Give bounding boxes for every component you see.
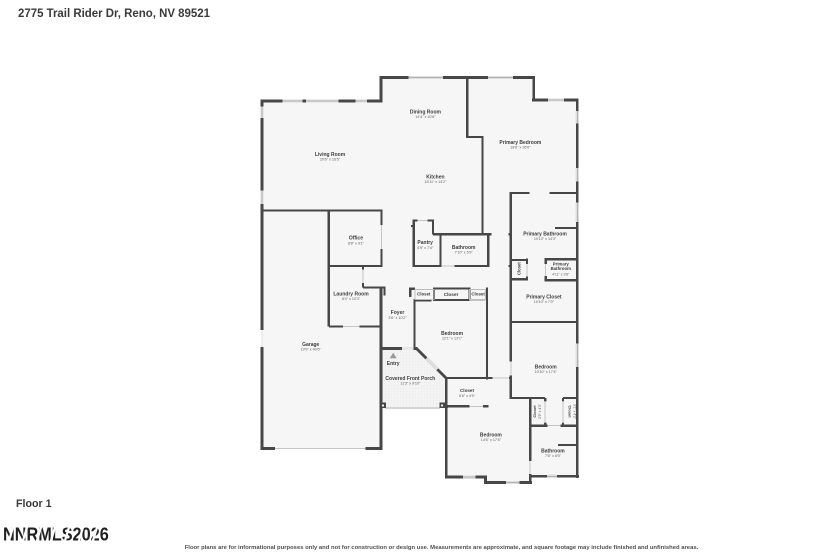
svg-text:3'6" x 10'2": 3'6" x 10'2" — [388, 316, 407, 320]
svg-text:10'10" x 17'4": 10'10" x 17'4" — [535, 370, 558, 374]
svg-text:Closet: Closet — [567, 405, 572, 418]
svg-text:Closet: Closet — [471, 292, 485, 297]
svg-text:8'4" x 10'3": 8'4" x 10'3" — [342, 297, 361, 301]
svg-text:3'1" x 4'2": 3'1" x 4'2" — [572, 404, 576, 420]
svg-text:14'6" x 17'6": 14'6" x 17'6" — [481, 438, 502, 442]
svg-text:Closet: Closet — [444, 292, 459, 297]
svg-text:12'1" x 13'1": 12'1" x 13'1" — [442, 337, 463, 341]
svg-text:10'10" x 7'0": 10'10" x 7'0" — [534, 300, 555, 304]
svg-text:2'9" x 4'3": 2'9" x 4'3" — [538, 403, 542, 419]
svg-text:10'10" x 14'3": 10'10" x 14'3" — [534, 237, 557, 241]
svg-text:11'3" x 9'10": 11'3" x 9'10" — [400, 382, 421, 386]
svg-text:Closet: Closet — [460, 388, 475, 393]
svg-text:4'11" x 3'8": 4'11" x 3'8" — [552, 273, 570, 277]
svg-text:Bathroom: Bathroom — [551, 266, 571, 271]
svg-text:14'4" x 10'6": 14'4" x 10'6" — [415, 115, 436, 119]
svg-text:7'10" x 5'9": 7'10" x 5'9" — [455, 251, 474, 255]
svg-text:Entry: Entry — [387, 361, 400, 367]
svg-text:8'8" x 9'1": 8'8" x 9'1" — [348, 241, 365, 245]
svg-text:6'6" x 4'9": 6'6" x 4'9" — [459, 394, 475, 398]
svg-text:Closet: Closet — [516, 262, 521, 275]
svg-text:7'8" x 8'5": 7'8" x 8'5" — [545, 454, 562, 458]
svg-text:15'11" x 14'2": 15'11" x 14'2" — [424, 180, 447, 184]
svg-text:20'6" x 16'5": 20'6" x 16'5" — [320, 157, 341, 161]
svg-text:Closet: Closet — [532, 405, 537, 418]
svg-text:19'9" x 40'6": 19'9" x 40'6" — [301, 348, 322, 352]
svg-text:Closet: Closet — [417, 292, 431, 297]
svg-text:18'6" x 26'6": 18'6" x 26'6" — [510, 146, 531, 150]
svg-text:4'9" x 7'4": 4'9" x 7'4" — [417, 246, 434, 250]
